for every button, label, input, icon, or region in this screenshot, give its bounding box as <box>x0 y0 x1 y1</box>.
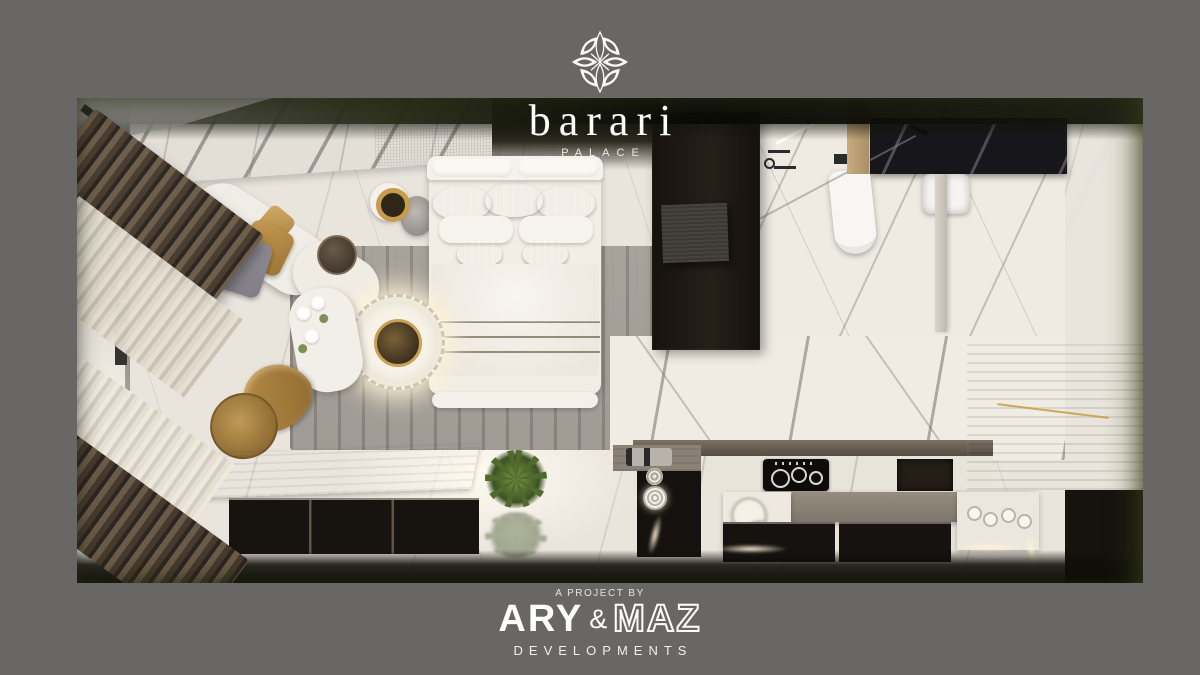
potted-plant <box>485 450 547 508</box>
scalloped-pillow <box>485 183 543 217</box>
lamp-side-table <box>370 183 408 221</box>
project-tagline: A PROJECT BY <box>0 588 1200 599</box>
headboard-cushion <box>517 159 599 177</box>
brand-name: barari <box>0 99 1200 143</box>
white-pillow <box>519 216 593 243</box>
hob-controls <box>775 462 817 465</box>
counter-niche <box>897 459 953 491</box>
headboard-cushion <box>431 159 513 177</box>
gold-handle-accent <box>997 403 1108 419</box>
induction-hob <box>763 459 829 491</box>
flower-decor <box>295 304 312 321</box>
developer-subtitle: DEVELOPMENTS <box>0 643 1200 658</box>
white-pillow <box>439 216 513 243</box>
leaf-decor <box>297 343 307 353</box>
developer-name-maz: MAZ <box>613 600 701 638</box>
shower-fixture <box>774 166 796 169</box>
gold-table-lamp <box>376 188 410 222</box>
fabric-ottoman <box>661 203 729 263</box>
flower-decor <box>303 327 320 344</box>
flower-decor <box>309 294 326 311</box>
ottoman-center <box>374 319 422 367</box>
leaf-decor <box>319 313 329 323</box>
decor-jar <box>643 486 667 510</box>
bed <box>427 156 603 408</box>
decor-jar <box>646 468 663 485</box>
tall-wood-unit <box>967 344 1143 490</box>
burner-ring <box>791 467 807 483</box>
drinking-glass <box>967 506 982 521</box>
console-top <box>205 445 480 498</box>
drinking-glass <box>1001 508 1016 523</box>
scalloped-pillow <box>537 186 595 220</box>
shower-head <box>764 158 775 169</box>
bronze-throw-blanket <box>430 320 600 366</box>
developer-lockup: A PROJECT BY ARY & MAZ DEVELOPMENTS <box>0 588 1200 658</box>
brand-subtitle: PALACE <box>0 147 1200 159</box>
barari-flower-icon <box>568 27 632 97</box>
burner-ring <box>809 471 823 485</box>
gold-shell-pillow <box>523 240 568 267</box>
foot-bench <box>432 392 598 408</box>
ampersand: & <box>589 606 607 633</box>
burner-ring <box>771 469 790 488</box>
round-wood-side-table <box>317 235 357 275</box>
scalloped-pillow <box>433 186 491 220</box>
drinking-glass <box>1017 514 1032 529</box>
developer-logo: ARY & MAZ <box>0 600 1200 638</box>
bronze-armchair <box>210 365 314 461</box>
brand-lockup: barari PALACE <box>0 27 1200 159</box>
drinking-glass <box>983 512 998 527</box>
poster: barari PALACE <box>0 0 1200 675</box>
media-console <box>205 454 485 560</box>
countertop-grill <box>626 448 672 466</box>
bed-headboard <box>427 156 603 180</box>
partition-wall <box>935 174 947 332</box>
glowing-led-ottoman <box>349 294 445 390</box>
developer-name-ary: ARY <box>498 600 583 638</box>
console-open-shelves <box>229 498 479 554</box>
apartment-render <box>77 98 1143 583</box>
gold-shell-pillow <box>457 240 502 267</box>
